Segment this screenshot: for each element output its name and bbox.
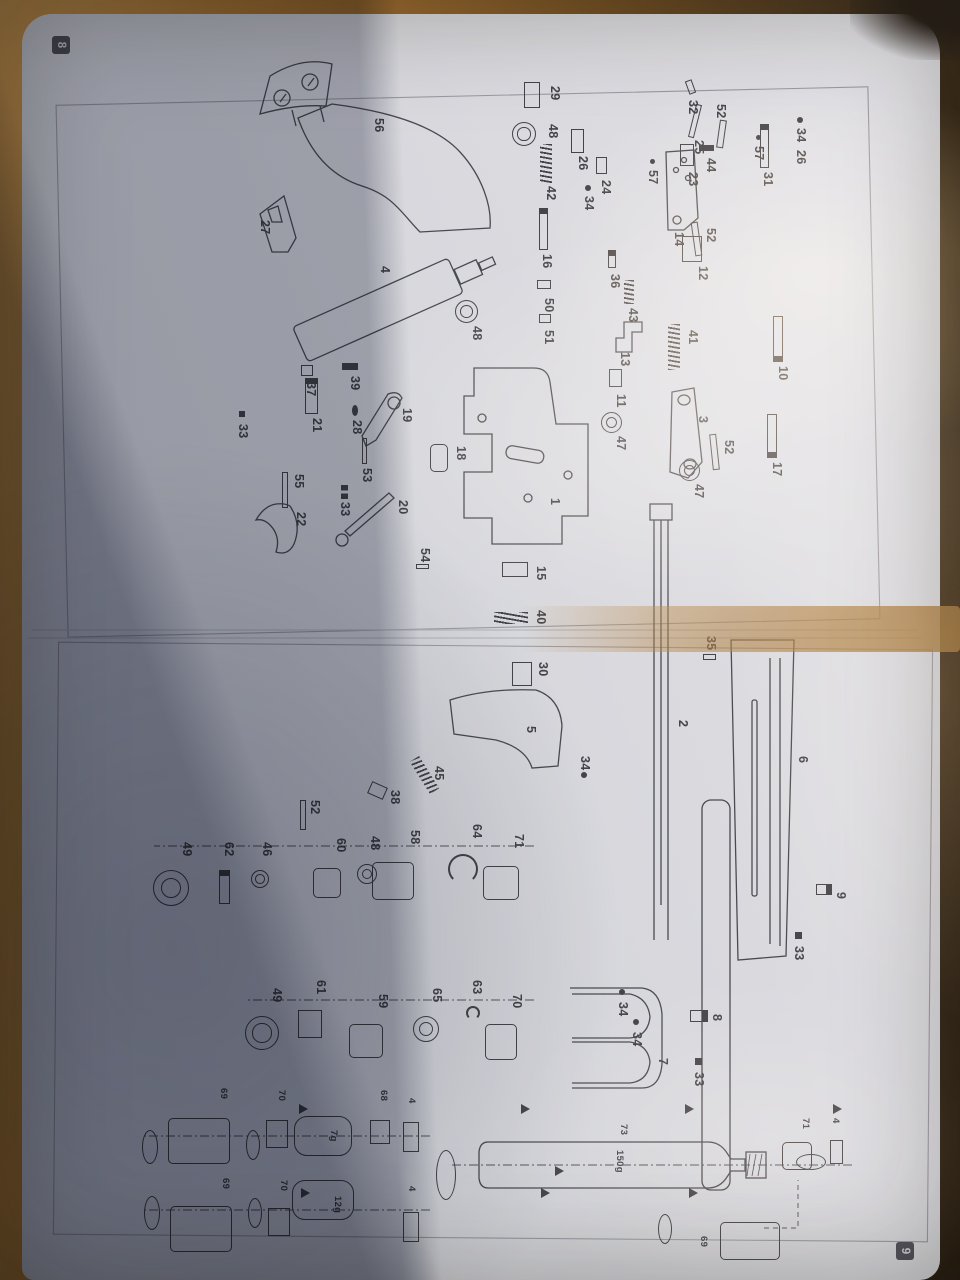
part-42: 42 (542, 186, 560, 201)
part-52: 52 (306, 800, 324, 815)
part-shape (539, 314, 551, 323)
part-69: 69 (696, 1236, 714, 1247)
part-shape (300, 800, 306, 830)
part-shape (168, 1118, 230, 1164)
part-shape (773, 316, 783, 362)
part-4: 4 (404, 1098, 422, 1104)
part-shape (352, 405, 358, 416)
part-label: 17 (770, 462, 784, 477)
part-label: 20 (396, 500, 410, 515)
part-9: 9 (832, 892, 850, 899)
part-71: 71 (510, 834, 528, 849)
part-shape (349, 1024, 383, 1058)
part-34: 34 (792, 128, 810, 143)
part-38: 38 (386, 790, 404, 805)
part-23: 23 (684, 172, 702, 187)
part-shape (430, 444, 448, 472)
part-5: 5 (522, 726, 540, 733)
part-shape (585, 185, 591, 191)
part-label: 52 (308, 800, 322, 815)
part-29: 29 (546, 86, 564, 101)
part-label: 62 (222, 842, 236, 857)
part-64: 64 (468, 824, 486, 839)
part-4: 4 (404, 1186, 422, 1192)
part-shape (624, 280, 634, 304)
part-53: 53 (358, 468, 376, 483)
part-shape (239, 411, 245, 417)
part-4: 4 (828, 1118, 846, 1124)
part-label: 16 (540, 254, 554, 269)
part-label: 71 (800, 1118, 811, 1129)
part-shape (537, 280, 551, 289)
part-shape (455, 300, 478, 323)
part-11: 11 (612, 394, 630, 408)
part-label: 6 (796, 756, 810, 763)
part-label: 34 (582, 196, 596, 211)
part-45: 45 (430, 766, 448, 781)
part-shape (512, 662, 532, 686)
part-shape (767, 414, 777, 458)
part-shape (372, 862, 414, 900)
part-label: 57 (646, 170, 660, 185)
part-shape (540, 144, 552, 184)
part-shape (633, 1019, 639, 1025)
part-shape (760, 124, 769, 168)
part-63: 63 (468, 980, 486, 995)
part-label: 42 (544, 186, 558, 201)
part-shape (685, 1104, 694, 1114)
part-shape (301, 1188, 310, 1198)
part-label: 46 (260, 842, 274, 857)
part-shape (448, 854, 478, 884)
part-34: 34 (576, 756, 594, 771)
part-label: 50 (542, 298, 556, 313)
part-shape (299, 1104, 308, 1114)
part-shape (362, 438, 367, 464)
part5-guard (450, 690, 562, 768)
part-15: 15 (532, 566, 550, 581)
part-shape (690, 1010, 708, 1022)
part-47: 47 (612, 436, 630, 451)
part-51: 51 (540, 330, 558, 345)
part-60: 60 (332, 838, 350, 853)
part-label: 34 (794, 128, 808, 143)
part-shape (703, 654, 716, 660)
part-33: 33 (790, 946, 808, 961)
part-label: 63 (470, 980, 484, 995)
part-shape (466, 1006, 480, 1020)
part-label: 59 (376, 994, 390, 1009)
part-label: 49 (180, 842, 194, 857)
part-label: 33 (338, 502, 352, 517)
part-label: 33 (236, 424, 250, 439)
part-label: 29 (548, 86, 562, 101)
part-shape (571, 129, 584, 153)
part-69: 69 (218, 1178, 236, 1189)
part-label: 4 (378, 266, 392, 273)
part-label: 15 (534, 566, 548, 581)
part-shape (153, 870, 189, 906)
part-71: 71 (798, 1118, 816, 1129)
part-label: 71 (512, 834, 526, 849)
part-shape (502, 562, 528, 577)
part-34: 34 (628, 1032, 646, 1047)
part-12g: 12g (330, 1196, 348, 1213)
part-label: 69 (218, 1088, 229, 1099)
part-shape (485, 1024, 517, 1060)
part-label: 12g (332, 1196, 343, 1213)
part-shape (512, 122, 536, 146)
part-label: 48 (470, 326, 484, 341)
part-shape (650, 159, 655, 164)
part-49: 49 (268, 988, 286, 1003)
part-48: 48 (544, 124, 562, 139)
part-label: 4 (830, 1118, 841, 1124)
part-label: 27 (258, 220, 272, 235)
part-label: 21 (310, 418, 324, 433)
part-label: 48 (546, 124, 560, 139)
part-label: 28 (350, 420, 364, 435)
part-shape (370, 1120, 390, 1144)
table-corner (850, 0, 960, 60)
part-27: 27 (256, 220, 274, 235)
part-label: 30 (536, 662, 550, 677)
stock-tube (702, 800, 730, 1190)
part-58: 58 (406, 830, 424, 845)
part-shape (301, 365, 313, 376)
part-52: 52 (720, 440, 738, 455)
part-label: 70 (278, 1180, 289, 1191)
part-label: 58 (408, 830, 422, 845)
part-label: 49 (270, 988, 284, 1003)
part-73: 73 (616, 1124, 634, 1135)
part-46: 46 (258, 842, 276, 857)
part-57: 57 (644, 170, 662, 185)
part-label: 4 (406, 1098, 417, 1104)
part-6: 6 (794, 756, 812, 763)
part-33: 33 (690, 1072, 708, 1087)
part-shape (251, 870, 269, 888)
part-55: 55 (290, 474, 308, 489)
part-shape (292, 1180, 354, 1220)
part-shape (596, 157, 607, 174)
part-shape (313, 868, 341, 898)
part-label: 13 (618, 352, 632, 367)
part-69: 69 (216, 1088, 234, 1099)
page8-frame (56, 87, 880, 637)
part-label: 51 (542, 330, 556, 345)
part-52: 52 (712, 104, 730, 119)
part-shape (268, 1208, 290, 1236)
part-shape (601, 412, 622, 433)
part-8: 8 (708, 1014, 726, 1021)
part6-stock (731, 640, 794, 960)
part-shape (341, 485, 348, 499)
part-shape (219, 870, 230, 904)
part-39: 39 (346, 376, 364, 391)
part-label: 38 (388, 790, 402, 805)
part-49: 49 (178, 842, 196, 857)
part-label: 47 (614, 436, 628, 451)
part-shape (833, 1104, 842, 1114)
part-shape (682, 236, 702, 262)
part-label: 60 (334, 838, 348, 853)
part-shape (539, 208, 548, 250)
part-shape (342, 363, 358, 370)
part-label: 33 (692, 1072, 706, 1087)
part-label: 36 (608, 274, 622, 289)
part-label: 53 (360, 468, 374, 483)
part-label: 47 (692, 484, 706, 499)
part-shape (795, 932, 802, 939)
part-34: 34 (614, 1002, 632, 1017)
part-shape (282, 472, 288, 508)
page-number-badge-9: 9 (896, 1242, 914, 1260)
part-label: 12 (696, 266, 710, 281)
part-26: 26 (792, 150, 810, 165)
part-label: 64 (470, 824, 484, 839)
part2-barrel (654, 520, 668, 940)
part-20: 20 (394, 500, 412, 515)
part-48: 48 (366, 836, 384, 851)
part-shape (609, 369, 622, 387)
part-shape (797, 117, 803, 123)
part-shape (658, 1214, 672, 1244)
part-shape (524, 82, 540, 108)
part-59: 59 (374, 994, 392, 1009)
fold-gap (520, 606, 960, 652)
part13-bracket (616, 322, 642, 352)
part-3: 3 (694, 416, 712, 423)
part-50: 50 (540, 298, 558, 313)
part-label: 7g (328, 1130, 339, 1142)
part-24: 24 (597, 180, 615, 195)
part-label: 5 (524, 726, 538, 733)
part-label: 68 (378, 1090, 389, 1101)
part-label: 2 (676, 720, 690, 727)
part-label: 31 (761, 172, 775, 187)
part-shape (248, 1198, 262, 1228)
part-label: 26 (576, 156, 590, 171)
part-label: 19 (400, 408, 414, 423)
part-label: 4 (406, 1186, 417, 1192)
part-68: 68 (376, 1090, 394, 1101)
part-label: 39 (348, 376, 362, 391)
part-34: 34 (580, 196, 598, 211)
part-shape (720, 1222, 780, 1260)
part-label: 43 (626, 308, 640, 323)
part-label: 24 (599, 180, 613, 195)
part-shape (483, 866, 519, 900)
part-shape (541, 1188, 550, 1198)
part-label: 61 (314, 980, 328, 995)
part-26: 26 (574, 156, 592, 171)
part-10: 10 (774, 366, 792, 381)
part-label: 48 (368, 836, 382, 851)
part-22: 22 (292, 512, 310, 527)
part-label: 1 (548, 498, 562, 505)
part-label: 34 (630, 1032, 644, 1047)
part-shape (413, 1016, 439, 1042)
part-label: 33 (792, 946, 806, 961)
part-56: 56 (370, 118, 388, 133)
part-shape (521, 1104, 530, 1114)
part-shape (245, 1016, 279, 1050)
part-shape (403, 1212, 419, 1242)
butt-plate (260, 62, 332, 114)
part-shape (144, 1196, 160, 1230)
part-label: 22 (294, 512, 308, 527)
part-label: 8 (710, 1014, 724, 1021)
part-label: 70 (510, 994, 524, 1009)
part-36: 36 (606, 274, 624, 289)
part-label: 150g (614, 1150, 625, 1173)
part-19: 19 (398, 408, 416, 423)
part-2: 2 (674, 720, 692, 727)
part-30: 30 (534, 662, 552, 677)
part-shape (246, 1130, 260, 1160)
part-shape (403, 1122, 419, 1152)
part-4: 4 (376, 266, 394, 273)
part-label: 7 (656, 1058, 670, 1065)
part-shape (619, 989, 625, 995)
part-shape (608, 250, 616, 268)
part-shape (416, 564, 429, 569)
part-label: 44 (704, 158, 718, 173)
manual-photo: 8 9 563225235229483426574431521426243457… (0, 0, 960, 1280)
part-28: 28 (348, 420, 366, 435)
part-label: 41 (686, 330, 700, 345)
part-label: 65 (430, 988, 444, 1003)
part-label: 54 (418, 548, 432, 563)
part-33: 33 (234, 424, 252, 439)
part-shape (679, 460, 700, 481)
part-shape (142, 1130, 158, 1164)
part-label: 70 (276, 1090, 287, 1101)
part-label: 10 (776, 366, 790, 381)
part-shape (668, 324, 680, 370)
part-shape (555, 1166, 564, 1176)
part-label: 9 (834, 892, 848, 899)
part-label: 3 (696, 416, 710, 423)
part-shape (170, 1206, 232, 1252)
part-62: 62 (220, 842, 238, 857)
part-shape (699, 145, 714, 151)
part-7g: 7g (326, 1130, 344, 1142)
part-41: 41 (684, 330, 702, 345)
part-label: 69 (698, 1236, 709, 1247)
part-label: 23 (686, 172, 700, 187)
part-shape (305, 378, 318, 414)
part-13: 13 (616, 352, 634, 367)
part-shape (680, 144, 694, 166)
part-33: 33 (336, 502, 354, 517)
part-70: 70 (274, 1090, 292, 1101)
part-label: 34 (578, 756, 592, 771)
part-43: 43 (624, 308, 642, 323)
part-shape (266, 1120, 288, 1148)
part-label: 56 (372, 118, 386, 133)
page-number-badge-8: 8 (52, 36, 70, 54)
part-54: 54 (416, 548, 434, 563)
part-label: 52 (714, 104, 728, 119)
part-label: 55 (292, 474, 306, 489)
part-label: 18 (454, 446, 468, 461)
part-label: 69 (220, 1178, 231, 1189)
grip-outline (298, 104, 490, 232)
part-17: 17 (768, 462, 786, 477)
part-shape (581, 772, 587, 778)
part-70: 70 (508, 994, 526, 1009)
part-31: 31 (759, 172, 777, 187)
part-shape (294, 1116, 352, 1156)
part-16: 16 (538, 254, 556, 269)
part-shape (298, 1010, 322, 1038)
part-shape (830, 1140, 843, 1164)
part-52: 52 (702, 228, 720, 243)
part-shape (695, 1058, 702, 1065)
part-label: 11 (614, 394, 628, 408)
part-label: 73 (618, 1124, 629, 1135)
part-12: 12 (694, 266, 712, 281)
part-150g: 150g (612, 1150, 630, 1173)
part-47: 47 (690, 484, 708, 499)
part-7: 7 (654, 1058, 672, 1065)
part-shape (796, 1154, 826, 1170)
part-65: 65 (428, 988, 446, 1003)
part1-receiver (464, 368, 588, 544)
part-21: 21 (308, 418, 326, 433)
part-shape (689, 1188, 698, 1198)
part-shape (816, 884, 832, 895)
part-61: 61 (312, 980, 330, 995)
part-label: 52 (704, 228, 718, 243)
part-label: 34 (616, 1002, 630, 1017)
part-shape (436, 1150, 456, 1200)
part-label: 52 (722, 440, 736, 455)
part19-lever (362, 393, 402, 446)
part-44: 44 (702, 158, 720, 173)
part-label: 26 (794, 150, 808, 165)
part-label: 45 (432, 766, 446, 781)
part-48: 48 (468, 326, 486, 341)
part-18: 18 (452, 446, 470, 461)
part-1: 1 (546, 498, 564, 505)
